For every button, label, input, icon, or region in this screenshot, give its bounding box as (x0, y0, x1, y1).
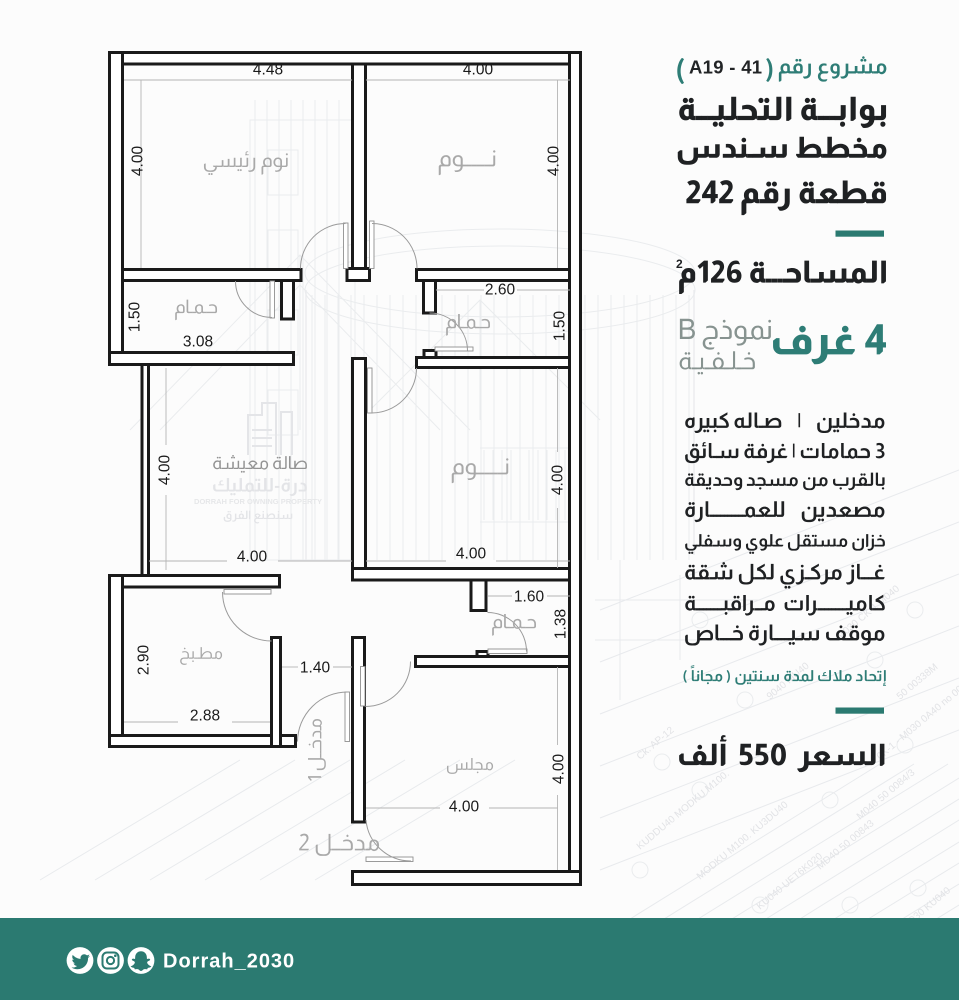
svg-text:4.00: 4.00 (551, 754, 568, 785)
svg-text:4.00: 4.00 (237, 549, 268, 566)
svg-text:4.00: 4.00 (546, 146, 563, 177)
svg-text:4.00: 4.00 (456, 546, 487, 563)
svg-text:2.60: 2.60 (485, 282, 516, 299)
svg-text:3.08: 3.08 (183, 334, 213, 351)
svg-text:4.00: 4.00 (449, 799, 480, 816)
svg-text:2.90: 2.90 (136, 645, 153, 676)
svg-text:4.00: 4.00 (550, 465, 567, 496)
svg-text:4.00: 4.00 (157, 455, 174, 486)
svg-text:1.40: 1.40 (300, 660, 331, 677)
svg-text:Dorrah_2030: Dorrah_2030 (163, 951, 295, 973)
svg-text:1.60: 1.60 (514, 589, 545, 606)
svg-text:2.88: 2.88 (190, 708, 220, 725)
svg-text:A19 - 41: A19 - 41 (689, 57, 762, 78)
svg-text:1.38: 1.38 (553, 609, 570, 639)
svg-text:4.00: 4.00 (130, 146, 147, 177)
svg-text:DORRAH FOR OWNING PROPERTY: DORRAH FOR OWNING PROPERTY (194, 497, 322, 506)
svg-text:2: 2 (676, 257, 683, 271)
svg-text:1.50: 1.50 (127, 302, 144, 333)
svg-text:1.50: 1.50 (552, 311, 569, 342)
svg-text:4.48: 4.48 (253, 62, 283, 79)
svg-text:4.00: 4.00 (463, 62, 494, 79)
